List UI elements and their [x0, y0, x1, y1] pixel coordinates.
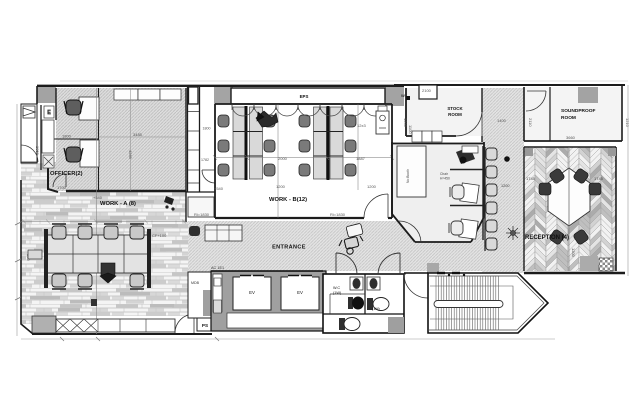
svg-text:EPS: EPS [300, 94, 309, 99]
svg-text:OFFICER(2): OFFICER(2) [50, 171, 83, 177]
svg-text:1210: 1210 [625, 118, 630, 128]
svg-text:WORK - B(12): WORK - B(12) [269, 197, 307, 203]
svg-text:2110: 2110 [528, 118, 533, 127]
svg-text:1800: 1800 [203, 127, 211, 131]
svg-text:W: W [401, 93, 405, 98]
svg-text:W.C: W.C [333, 286, 340, 290]
svg-text:+540: +540 [214, 186, 224, 191]
svg-text:H=450: H=450 [440, 177, 450, 181]
svg-text:Chair: Chair [440, 172, 449, 176]
svg-text:3485: 3485 [133, 132, 143, 137]
svg-text:1745: 1745 [594, 176, 604, 181]
svg-text:1400: 1400 [497, 118, 507, 123]
svg-text:1050: 1050 [35, 146, 40, 156]
svg-text:Ri=1830: Ri=1830 [194, 212, 210, 217]
svg-text:STOCK: STOCK [447, 106, 463, 111]
svg-text:1887: 1887 [356, 156, 366, 161]
svg-text:4285: 4285 [128, 150, 133, 160]
svg-text:PS: PS [202, 323, 208, 328]
svg-text:1700: 1700 [57, 185, 67, 190]
svg-text:1200: 1200 [276, 184, 286, 189]
svg-text:CF+100: CF+100 [152, 233, 167, 238]
svg-text:1782: 1782 [201, 158, 209, 162]
svg-text:EV: EV [249, 290, 255, 295]
svg-text:SOUNDPROOF: SOUNDPROOF [561, 108, 595, 114]
svg-text:EV: EV [297, 290, 303, 295]
svg-text:ROOM: ROOM [561, 115, 576, 121]
svg-text:(1W): (1W) [333, 291, 342, 295]
svg-text:12x3: 12x3 [357, 123, 366, 128]
svg-text:1200: 1200 [403, 118, 408, 128]
svg-text:1200: 1200 [571, 248, 576, 258]
svg-text:1745: 1745 [526, 176, 536, 181]
svg-text:ROOM: ROOM [448, 112, 462, 117]
svg-text:(1M): (1M) [372, 307, 381, 311]
svg-text:MDB: MDB [191, 281, 200, 285]
svg-text:No Booth: No Booth [406, 169, 410, 183]
svg-text:Ri=1830: Ri=1830 [330, 212, 346, 217]
svg-text:1200: 1200 [501, 184, 509, 188]
svg-text:1800: 1800 [62, 134, 72, 139]
svg-text:2100: 2100 [422, 88, 432, 93]
svg-text:RECEPTION (4): RECEPTION (4) [525, 235, 569, 241]
svg-text:AC 1E1: AC 1E1 [211, 266, 224, 270]
svg-text:3660: 3660 [566, 135, 576, 140]
svg-text:+540: +540 [93, 195, 103, 200]
svg-text:WORK - A (8): WORK - A (8) [100, 201, 136, 207]
svg-text:1200: 1200 [367, 184, 377, 189]
svg-text:ENTRANCE: ENTRANCE [272, 245, 306, 251]
svg-text:2000: 2000 [278, 156, 288, 161]
